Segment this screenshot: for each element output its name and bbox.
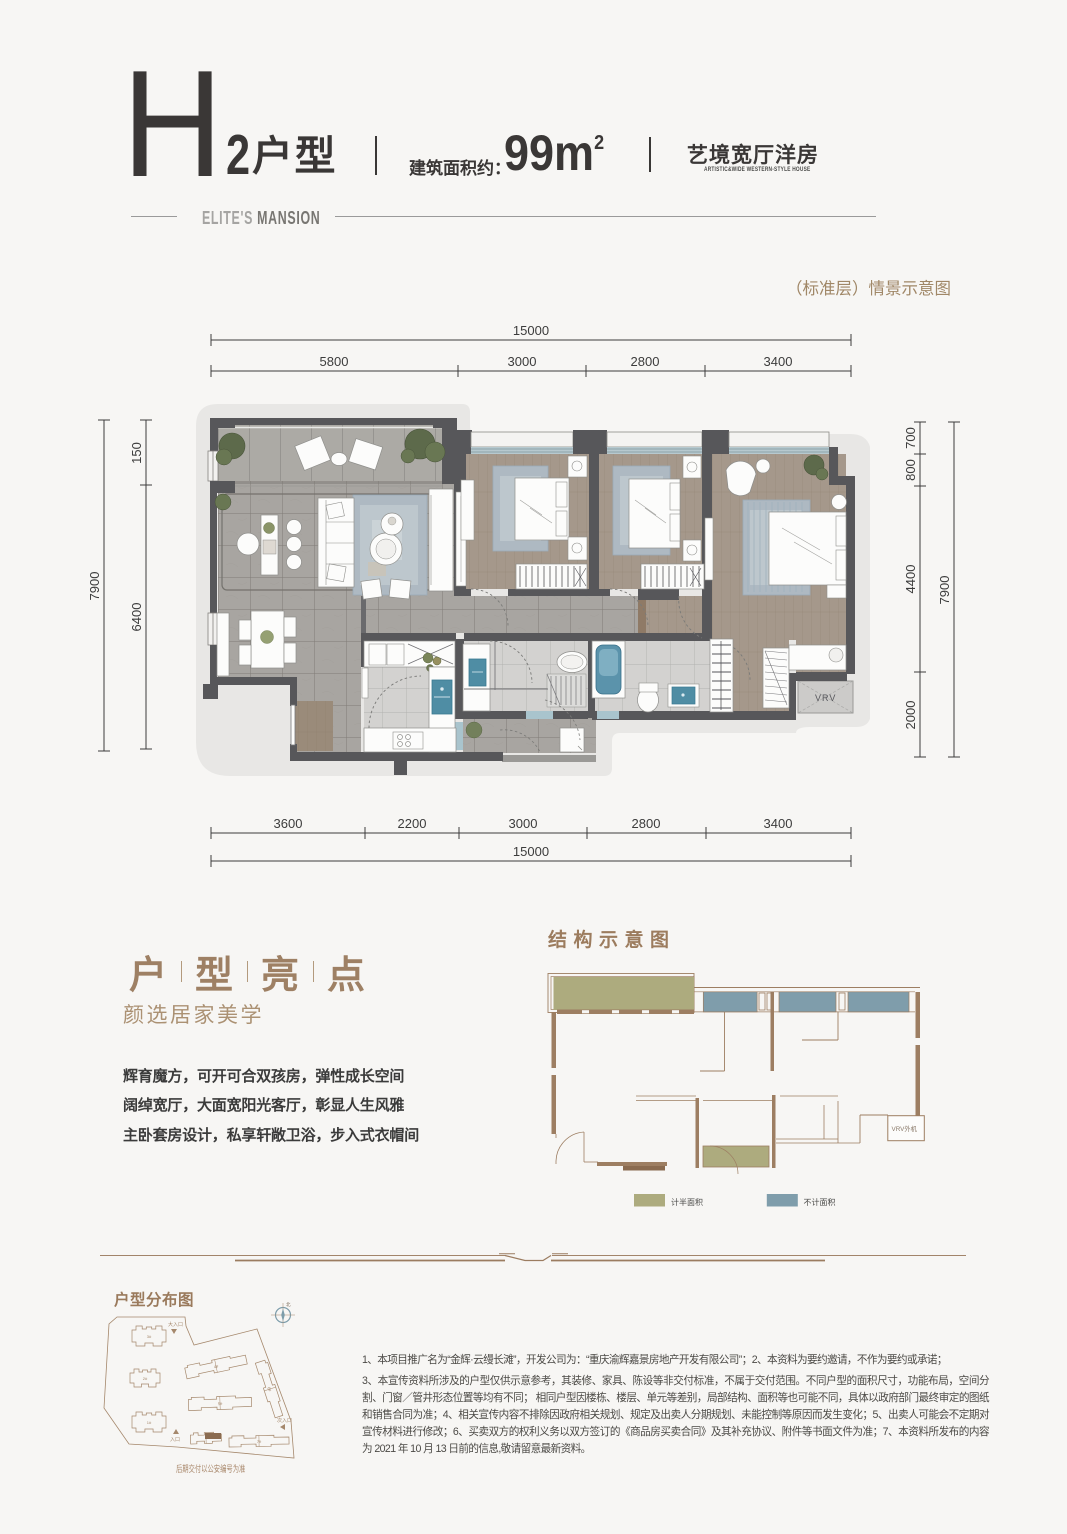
- svg-text:7900: 7900: [937, 576, 952, 605]
- svg-text:2200: 2200: [398, 816, 427, 831]
- svg-text:4400: 4400: [903, 565, 918, 594]
- svg-text:1#: 1#: [147, 1420, 152, 1425]
- svg-text:2800: 2800: [632, 816, 661, 831]
- svg-text:3000: 3000: [509, 816, 538, 831]
- svg-text:6#: 6#: [266, 1386, 272, 1393]
- svg-text:大入口: 大入口: [168, 1321, 183, 1328]
- svg-text:7#: 7#: [257, 1439, 262, 1444]
- svg-text:3600: 3600: [274, 816, 303, 831]
- svg-text:不计面积: 不计面积: [804, 1197, 836, 1207]
- svg-text:2000: 2000: [903, 701, 918, 730]
- svg-text:北: 北: [286, 1301, 291, 1308]
- svg-text:计半面积: 计半面积: [671, 1197, 703, 1207]
- svg-text:入口: 入口: [170, 1437, 180, 1443]
- svg-text:3400: 3400: [764, 354, 793, 369]
- svg-text:7900: 7900: [90, 572, 102, 601]
- svg-text:3400: 3400: [764, 816, 793, 831]
- svg-text:2800: 2800: [631, 354, 660, 369]
- svg-text:5800: 5800: [320, 354, 349, 369]
- svg-text:5#: 5#: [218, 1401, 223, 1406]
- svg-text:2#: 2#: [143, 1376, 148, 1381]
- svg-text:3#: 3#: [147, 1334, 152, 1339]
- svg-text:700: 700: [903, 427, 918, 449]
- svg-text:3000: 3000: [508, 354, 537, 369]
- svg-text:4#: 4#: [213, 1363, 219, 1369]
- svg-text:800: 800: [903, 459, 918, 481]
- svg-text:15000: 15000: [513, 323, 549, 338]
- svg-text:150: 150: [129, 442, 144, 464]
- svg-text:6400: 6400: [129, 603, 144, 632]
- svg-text:次入口: 次入口: [277, 1417, 292, 1424]
- svg-text:VRV外机: VRV外机: [892, 1124, 918, 1133]
- svg-text:15000: 15000: [513, 844, 549, 859]
- svg-text:VRV: VRV: [815, 693, 836, 703]
